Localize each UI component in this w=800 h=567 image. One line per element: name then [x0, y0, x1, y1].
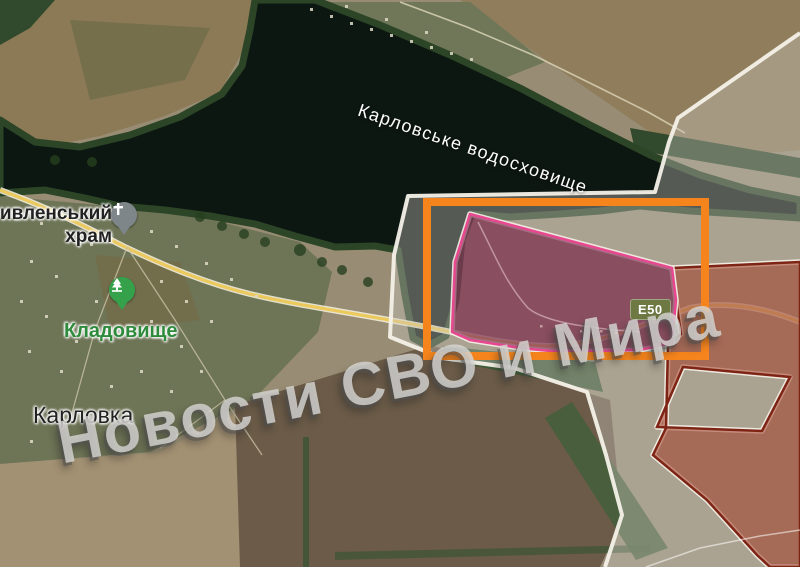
church-label-line1: ивленський	[0, 202, 112, 225]
cemetery-label[interactable]: Кладовище	[64, 320, 178, 343]
church-label-line2: храм	[0, 225, 112, 248]
church-cross-icon	[111, 202, 125, 216]
church-label[interactable]: ивленський храм	[0, 202, 112, 248]
church-pin[interactable]	[111, 202, 137, 228]
cemetery-tree-icon	[109, 277, 125, 293]
cemetery-pin[interactable]	[109, 277, 135, 303]
satellite-map[interactable]: Карловське водосховище ивленський храм К…	[0, 0, 800, 567]
hedge-vertical	[303, 437, 309, 567]
